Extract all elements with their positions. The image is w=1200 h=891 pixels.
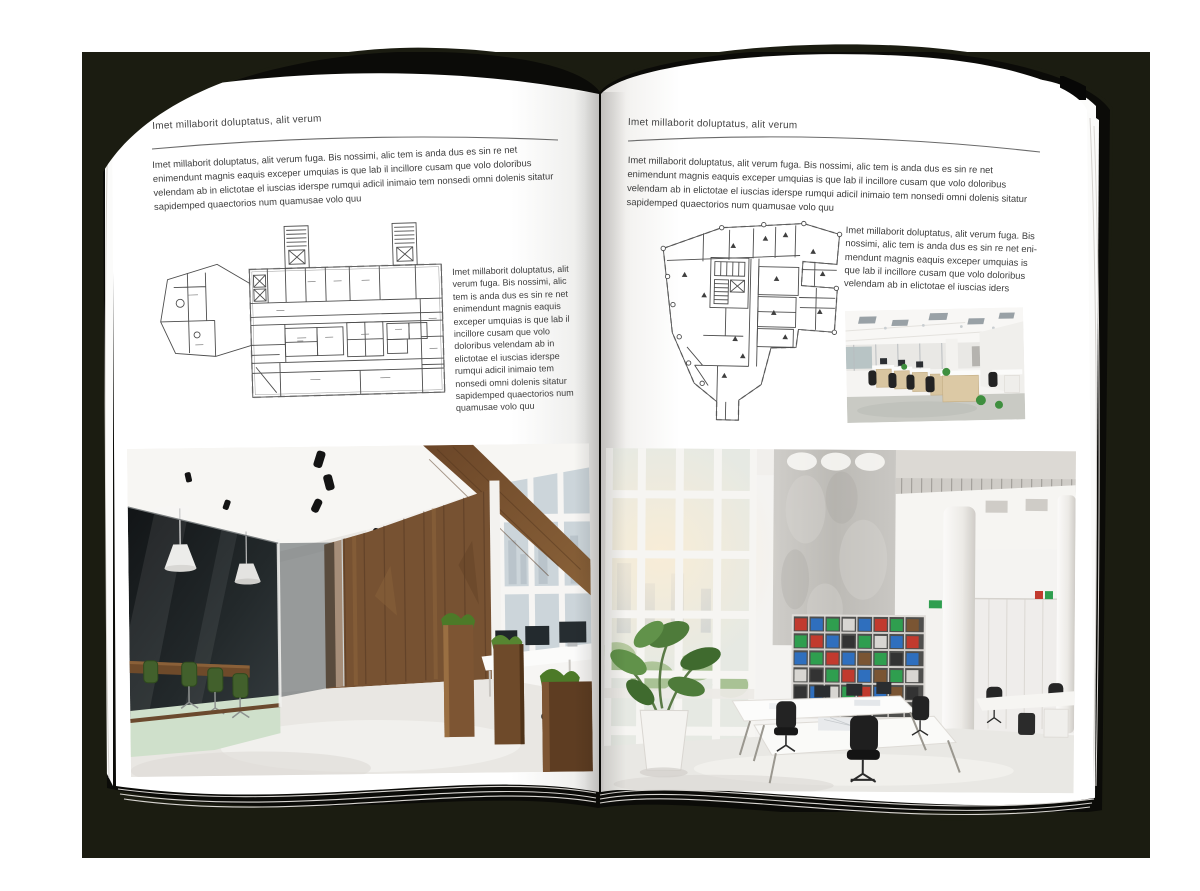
right-floor-plan (641, 214, 844, 431)
column (942, 506, 976, 754)
stair-tower-right (392, 223, 417, 266)
magazine-mockup-stage: Imet millaborit doluptatus, alit verum I… (0, 0, 1200, 891)
right-title-rule (626, 127, 1044, 155)
left-office-photo (127, 443, 593, 782)
right-small-photo (845, 307, 1025, 428)
exit-sign (929, 600, 942, 608)
stair-tower-left (284, 226, 309, 269)
left-floor-plan (156, 218, 453, 417)
right-intro-paragraph: Imet millaborit doluptatus, alit verum f… (626, 153, 1031, 221)
right-office-photo (604, 448, 1076, 798)
right-side-text: Imet millaborit doluptatus, alit verum f… (844, 223, 1044, 296)
left-side-text: Imet millaborit doluptatus, alit verum f… (452, 263, 578, 415)
mezzanine (895, 450, 1076, 551)
